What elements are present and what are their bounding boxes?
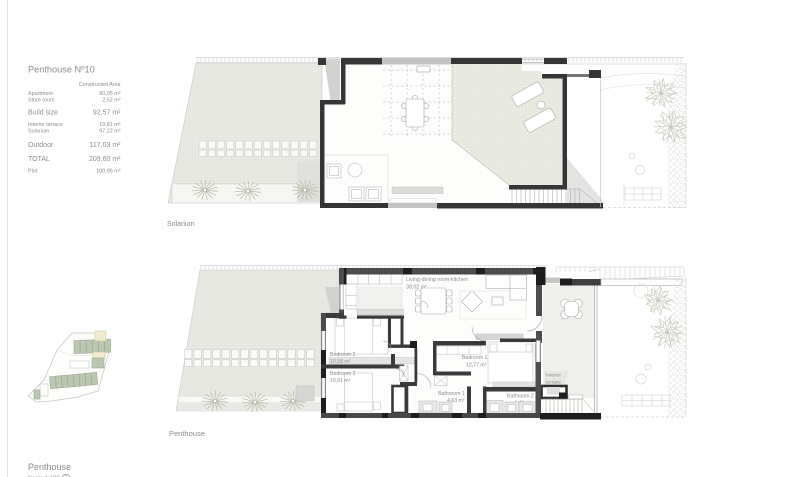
svg-text:100,96 m²: 100,96 m²	[96, 169, 120, 175]
svg-text:10,58 m²: 10,58 m²	[330, 359, 351, 365]
svg-text:Store room: Store room	[28, 98, 55, 104]
svg-text:80,05 m²: 80,05 m²	[99, 91, 120, 97]
svg-text:Solarium: Solarium	[167, 221, 195, 228]
svg-text:Living-dining room-kitchen: Living-dining room-kitchen	[406, 277, 468, 283]
svg-text:Penthouse: Penthouse	[169, 429, 205, 438]
svg-text:Outdoor: Outdoor	[28, 142, 54, 149]
svg-text:Constructed Area: Constructed Area	[79, 82, 121, 88]
svg-text:92,57 m²: 92,57 m²	[93, 110, 121, 117]
svg-text:2,52 m²: 2,52 m²	[102, 98, 120, 104]
svg-text:12,77 m²: 12,77 m²	[466, 363, 487, 369]
svg-text:117,03 m²: 117,03 m²	[90, 142, 122, 149]
svg-text:Bedroom 2: Bedroom 2	[330, 352, 355, 358]
svg-text:Solarium: Solarium	[28, 129, 50, 135]
svg-text:TOTAL: TOTAL	[28, 156, 50, 163]
svg-text:Build size: Build size	[28, 110, 58, 117]
svg-text:19,81 m²: 19,81 m²	[99, 122, 120, 128]
svg-text:terrace: terrace	[546, 380, 561, 386]
svg-text:Penthouse: Penthouse	[28, 462, 71, 472]
svg-text:209,60 m²: 209,60 m²	[89, 156, 121, 163]
svg-text:97,22 m²: 97,22 m²	[99, 129, 120, 135]
svg-text:Bedroom 1: Bedroom 1	[462, 355, 487, 361]
svg-text:Interior terrace: Interior terrace	[28, 122, 63, 128]
svg-text:Bedroom 3: Bedroom 3	[330, 371, 355, 377]
svg-text:Bathroom 1: Bathroom 1	[438, 391, 465, 397]
svg-text:10,61 m²: 10,61 m²	[330, 378, 351, 384]
svg-text:Bathroom 2: Bathroom 2	[507, 394, 534, 400]
svg-text:Interior: Interior	[546, 373, 561, 379]
svg-text:Plot: Plot	[28, 169, 38, 175]
svg-text:Apartment: Apartment	[28, 91, 53, 97]
svg-text:Penthouse Nº10: Penthouse Nº10	[28, 65, 95, 75]
